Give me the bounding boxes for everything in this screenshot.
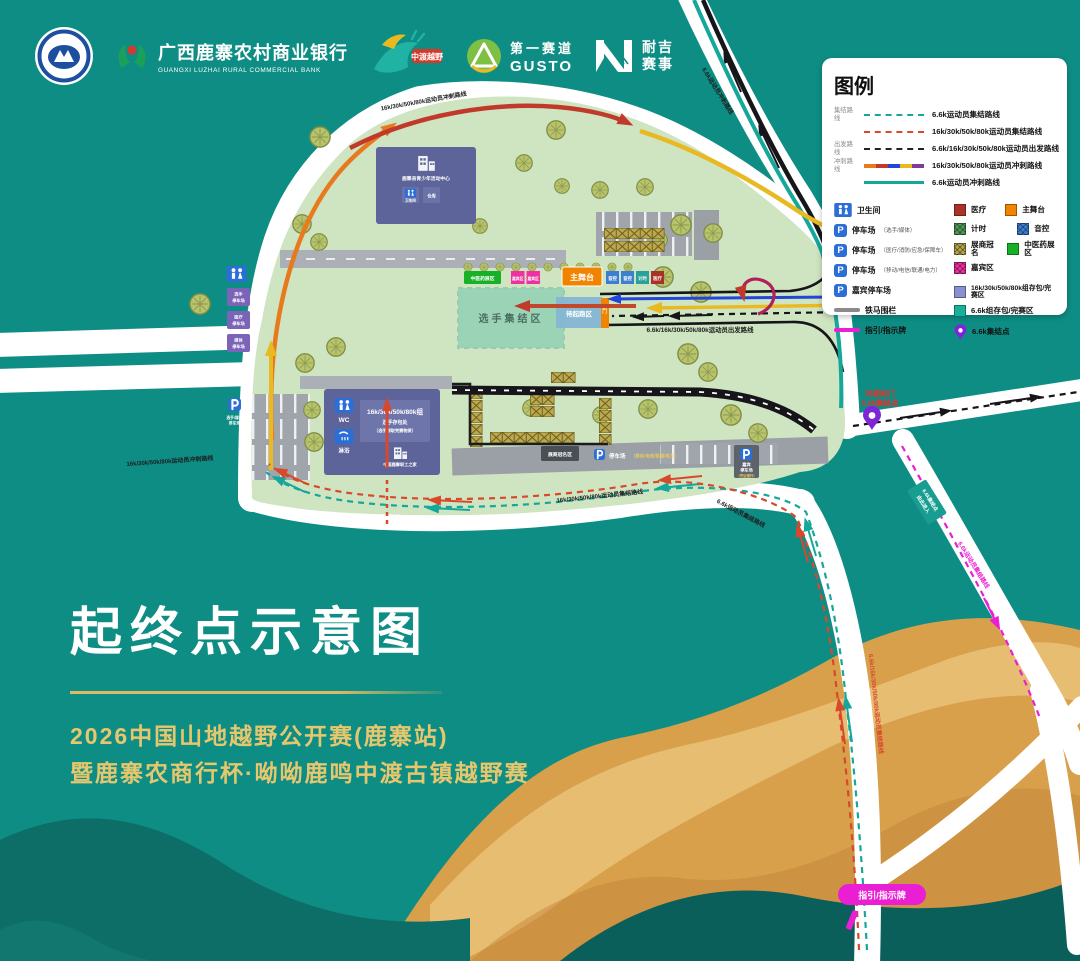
timing-box-label: 计时 — [638, 275, 647, 282]
bagdrop-16k-swatch — [954, 286, 966, 298]
legend-route-row: 集结路线 6.6k运动员集结路线 — [834, 106, 1055, 123]
mascot-wordmark: 中渡越野 — [411, 52, 443, 62]
legend-area-row: 16k/30k/50k/80k组存包/完赛区 — [954, 282, 1055, 302]
naiji-name-l1: 耐吉 — [642, 39, 674, 57]
main-stage-label: 主舞台 — [570, 272, 594, 282]
event-name-line1: 2026中国山地越野公开赛(鹿寨站) — [70, 718, 530, 755]
left-parking-l2: 停车场 — [229, 421, 241, 426]
building-bag-drop: WC 淋浴 16k/30k/50k/80k组 选手存包处 （选手领取完赛物资） … — [324, 389, 440, 475]
barrier-line-swatch — [834, 308, 860, 312]
poster-canvas: 鹿寨县青少年活动中心 卫生间 仓库 WC 淋浴 16k/30k/50k/80k组… — [0, 0, 1080, 961]
legend-facility-row: 指引/指示牌 — [834, 320, 946, 340]
signboard-line-swatch — [834, 328, 860, 332]
legend-panel: 图例 集结路线 6.6k运动员集结路线 16k/30k/50k/80k运动员集结… — [822, 58, 1067, 315]
sprint-left-label: 16k/30k/50k/80k运动员冲刺路线 — [126, 454, 213, 468]
naiji-name-l2: 赛事 — [642, 56, 674, 74]
building-activity-center: 鹿寨县青少年活动中心 卫生间 仓库 — [376, 147, 476, 224]
b1-room1-label: 卫生间 — [405, 198, 416, 203]
guest-zone-label: 嘉宾区 — [527, 276, 540, 281]
building-1-label: 鹿寨县青少年活动中心 — [402, 175, 450, 182]
medical-box-label: 医疗 — [653, 275, 662, 282]
gate-label-2: 6.6k集结点 — [861, 398, 899, 408]
pre-start-label: 待起跑区 — [566, 309, 593, 318]
sign-badge: 选手 — [234, 291, 243, 298]
signboard-label: 指引/指示牌 — [858, 890, 906, 901]
sound-box-label: 音控 — [608, 275, 617, 282]
legend-facility-row: P 停车场 （选手/媒体） — [834, 220, 946, 240]
parking-icon: P — [834, 224, 847, 237]
bank-name: 广西鹿寨农村商业银行 — [158, 39, 348, 65]
vip-parking-note: （凭证通行） — [736, 473, 756, 478]
wc-icon — [227, 266, 247, 282]
sign-badge: 媒体 — [234, 337, 243, 344]
bank-name-en: GUANGXI LUZHAI RURAL COMMERCIAL BANK — [158, 67, 348, 74]
tcm-zone-label: 中医药展区 — [471, 275, 495, 282]
emblem-logo — [34, 26, 94, 86]
muster-pin-icon — [954, 324, 967, 340]
route-group-label: 集结路线 — [834, 107, 856, 121]
vip-parking-l2: 停车场 — [740, 467, 753, 474]
event-mascot-logo: 中渡越野 — [368, 29, 446, 83]
bank-logo: 广西鹿寨农村商业银行 GUANGXI LUZHAI RURAL COMMERCI… — [114, 36, 348, 76]
bag-zone-line1: 16k/30k/50k/80k组 — [367, 407, 424, 416]
legend-title: 图例 — [834, 70, 1055, 99]
shower-icon — [335, 429, 354, 444]
naiji-logo: 耐吉 赛事 — [594, 38, 674, 74]
legend-route-list: 集结路线 6.6k运动员集结路线 16k/30k/50k/80k运动员集结路线 … — [834, 106, 1055, 191]
left-parking-l1: 选手/媒体 — [226, 415, 242, 420]
stage-swatch — [1005, 204, 1017, 216]
sign-badge: 医疗 — [234, 314, 243, 321]
sign-badge: 停车场 — [232, 320, 245, 327]
guest-swatch — [954, 262, 966, 274]
black-dashed-line-swatch — [864, 148, 924, 150]
multicolor-line-swatch — [864, 164, 924, 168]
legend-route-row: 出发路线 6.6k/16k/30k/50k/80k运动员出发路线 — [834, 140, 1055, 157]
wc-icon — [834, 203, 852, 217]
expo-booth-label: 展商冠名区 — [548, 451, 572, 458]
expo-swatch — [954, 243, 966, 255]
gusto-logo: 第一赛道 GUSTO — [466, 38, 574, 75]
gate-label-1: 河堤闸门 — [865, 388, 895, 398]
sound-swatch — [1017, 223, 1029, 235]
red-dashed-line-swatch — [864, 131, 924, 133]
b2-wc-label: WC — [339, 417, 350, 424]
county-emblem-icon — [34, 26, 94, 86]
title-divider — [70, 691, 442, 694]
b1-room2-label: 仓库 — [426, 193, 436, 200]
bag-zone-line3: （选手领取完赛物资） — [374, 427, 416, 434]
legend-facility-row: 铁马围栏 — [834, 300, 946, 320]
mid-parking-label: 停车场 — [609, 452, 626, 460]
legend-area-list: 医疗 主舞台 计时 音控 展商冠名 中医药展区 嘉宾区 — [954, 200, 1055, 340]
legend-pin-row: 6.6k集结点 — [954, 324, 1055, 340]
mid-parking-note: （移动/电信/联通/电力） — [631, 453, 679, 460]
legend-area-row: 展商冠名 中医药展区 — [954, 239, 1055, 259]
legend-facility-list: 卫生间 P 停车场 （选手/媒体） P 停车场 （医疗/消防/应急/保障车） P… — [834, 200, 946, 340]
gusto-icon — [466, 38, 502, 74]
timing-swatch — [954, 223, 966, 235]
tcm-swatch — [1007, 243, 1019, 255]
sponsor-logo-bar: 广西鹿寨农村商业银行 GUANGXI LUZHAI RURAL COMMERCI… — [34, 26, 674, 86]
legend-route-row: 6.6k运动员冲刺路线 — [834, 174, 1055, 191]
legend-facility-row: P 嘉宾停车场 — [834, 280, 946, 300]
start-corridor-label: 6.6k/16k/30k/50k/80k运动员出发路线 — [647, 325, 755, 334]
b2-shower-label: 淋浴 — [338, 447, 350, 455]
sign-badge: 停车场 — [232, 297, 245, 304]
pin-label: 6.6k集结点 — [972, 328, 1010, 336]
naiji-n-icon — [594, 38, 634, 74]
sound-box-label: 音控 — [623, 275, 632, 282]
teal-solid-line-swatch — [864, 181, 924, 185]
bagdrop-66k-swatch — [954, 305, 966, 317]
deer-mascot-icon: 中渡越野 — [368, 29, 446, 83]
gusto-name-cn: 第一赛道 — [510, 38, 574, 57]
wc-icon — [405, 189, 416, 198]
teal-dashed-line-swatch — [864, 114, 924, 116]
parking-icon: P — [834, 264, 847, 277]
legend-route-row: 冲刺路线 16k/30k/50k/80k运动员冲刺路线 — [834, 157, 1055, 174]
legend-area-row: 计时 音控 — [954, 220, 1055, 240]
poster-title: 起终点示意图 — [70, 590, 530, 665]
guest-zone-label: 嘉宾区 — [511, 276, 524, 281]
legend-facility-row: P 停车场 （移动/电信/联通/电力） — [834, 260, 946, 280]
event-name-line2: 暨鹿寨农商行杯·呦呦鹿鸣中渡古镇越野赛 — [70, 755, 530, 792]
parking-icon: P — [834, 244, 847, 257]
legend-facility-row: P 停车场 （医疗/消防/应急/保障车） — [834, 240, 946, 260]
medical-swatch — [954, 204, 966, 216]
legend-route-row: 16k/30k/50k/80k运动员集结路线 — [834, 123, 1055, 140]
legend-area-row: 6.6k组存包/完赛区 — [954, 302, 1055, 322]
muster-zone-label: 选手集结区 — [479, 312, 544, 325]
bank-emblem-icon — [114, 36, 150, 76]
route-group-label: 冲刺路线 — [834, 158, 856, 172]
legend-area-row: 嘉宾区 — [954, 259, 1055, 279]
gusto-name-en: GUSTO — [510, 58, 574, 75]
sign-badge: 停车场 — [232, 343, 245, 350]
wc-icon — [335, 398, 354, 413]
parking-icon: P — [834, 284, 847, 297]
legend-area-row: 医疗 主舞台 — [954, 200, 1055, 220]
title-block: 起终点示意图 2026中国山地越野公开赛(鹿寨站) 暨鹿寨农商行杯·呦呦鹿鸣中渡… — [70, 590, 530, 792]
route-group-label: 出发路线 — [834, 141, 856, 155]
legend-facility-row: 卫生间 — [834, 200, 946, 220]
